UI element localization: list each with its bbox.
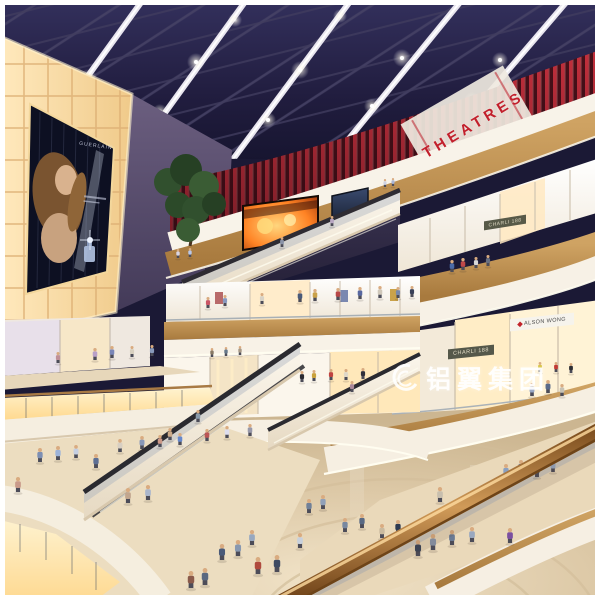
developer-watermark: 铝翼集团 — [386, 360, 550, 396]
mall-render-scene — [0, 0, 600, 600]
brand-diamond-icon — [517, 321, 523, 327]
mall-atrium-render: THEATRES GUERLAIN CHARLI 188 ALSON WONG … — [0, 0, 600, 600]
watermark-swirl-icon — [386, 362, 420, 394]
watermark-text: 铝翼集团 — [426, 360, 550, 396]
